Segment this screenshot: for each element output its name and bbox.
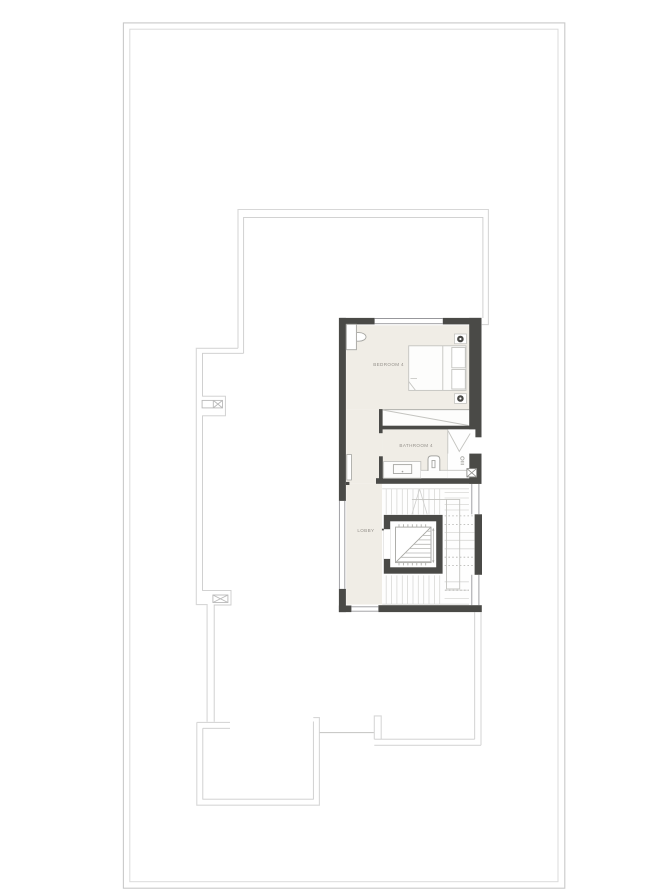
- svg-text:BEDROOM 4: BEDROOM 4: [373, 362, 404, 367]
- svg-text:BATHROOM 4: BATHROOM 4: [399, 443, 433, 448]
- svg-text:LOBBY: LOBBY: [357, 528, 374, 533]
